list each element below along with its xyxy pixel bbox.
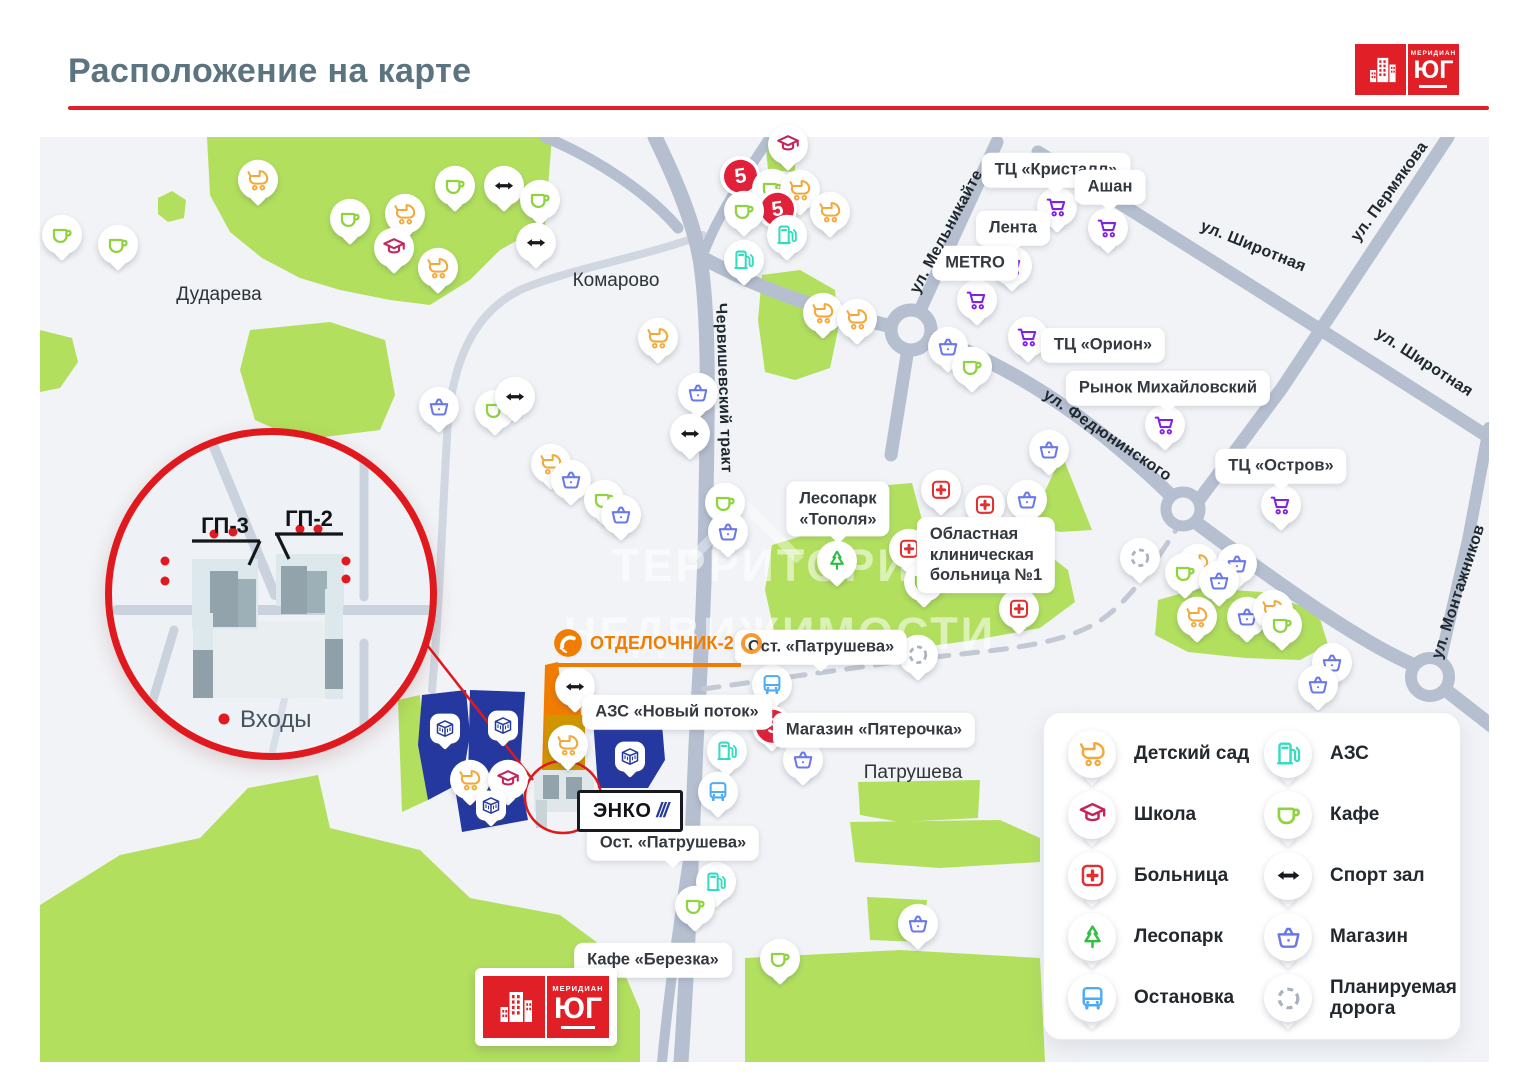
pin-basket-icon xyxy=(678,373,718,413)
pin-gas-icon xyxy=(707,731,747,771)
pin-school-icon xyxy=(374,228,414,268)
pin-basket-icon xyxy=(1298,665,1338,705)
pin-basket-icon xyxy=(1007,480,1047,520)
otdelochnik-icon xyxy=(553,628,583,658)
building-icon xyxy=(1364,54,1398,86)
map-legend: Детский садШколаБольницаЛесопаркОстановк… xyxy=(1043,712,1461,1040)
enko-slashes-icon: /// xyxy=(656,800,667,823)
page-title: Расположение на карте xyxy=(68,52,471,91)
gas-icon xyxy=(1264,730,1312,778)
pin-stroller-icon xyxy=(638,318,678,358)
legend-label: Школа xyxy=(1134,804,1196,826)
inset-scene: ГП-3 ГП-2 Входы xyxy=(112,435,430,753)
stroller-icon xyxy=(1068,730,1116,778)
place-label: Лента xyxy=(976,211,1050,246)
enko-text: ЭНКО xyxy=(593,800,651,823)
legend-label: Остановка xyxy=(1134,987,1234,1009)
bus-icon xyxy=(1068,974,1116,1022)
residential-building-icon xyxy=(430,714,460,744)
pin-school-icon xyxy=(768,125,808,165)
legend-label: Кафе xyxy=(1330,804,1379,826)
pin-hospital-icon xyxy=(999,589,1039,629)
district-label: Комарово xyxy=(573,270,660,292)
pin-cafe-icon xyxy=(1262,605,1302,645)
legend-label: АЗС xyxy=(1330,743,1369,765)
pin-sport-icon xyxy=(484,166,524,206)
title-underline xyxy=(68,106,1489,110)
legend-label: Планируемая дорога xyxy=(1330,977,1460,1021)
inset-gp3-label: ГП-3 xyxy=(201,513,249,538)
pin-cafe-icon xyxy=(42,215,82,255)
pin-stroller-icon xyxy=(810,192,850,232)
legend-item-school: Школа xyxy=(1068,791,1264,839)
pin-gas-icon xyxy=(724,240,764,280)
pin-sport-icon xyxy=(516,223,556,263)
otdelochnik-text: ОТДЕЛОЧНИК-2 xyxy=(590,633,734,654)
legend-label: Больница xyxy=(1134,865,1228,887)
enko-logo: ЭНКО /// xyxy=(577,790,683,832)
pin-cafe-icon xyxy=(952,347,992,387)
pin-basket-icon xyxy=(419,387,459,427)
pin-hospital-icon xyxy=(921,470,961,510)
yug-building-icon xyxy=(483,976,545,1038)
legend-item-planned: Планируемая дорога xyxy=(1264,974,1460,1022)
hospital-icon xyxy=(1068,852,1116,900)
legend-item-tree: Лесопарк xyxy=(1068,913,1264,961)
yug-site-logo: МЕРИДИАН ЮГ xyxy=(475,968,617,1046)
yug-underline xyxy=(561,1026,595,1029)
legend-item-basket: Магазин xyxy=(1264,913,1460,961)
brand-main-text: ЮГ xyxy=(1414,58,1454,83)
legend-item-stroller: Детский сад xyxy=(1068,730,1264,778)
residential-building-icon xyxy=(476,791,506,821)
yug-wordmark: МЕРИДИАН ЮГ xyxy=(547,976,609,1038)
pin-basket-icon xyxy=(1199,561,1239,601)
otdelochnik-ring-icon xyxy=(741,633,762,654)
pin-planned-icon xyxy=(1120,538,1160,578)
brand-underline xyxy=(1419,85,1447,88)
place-label: Ашан xyxy=(1075,170,1146,205)
cafe-icon xyxy=(1264,791,1312,839)
residential-building-icon xyxy=(488,711,518,741)
pin-basket-icon xyxy=(898,904,938,944)
pin-basket-icon xyxy=(1029,430,1069,470)
legend-item-sport: Спорт зал xyxy=(1264,852,1460,900)
place-label: Рынок Михайловский xyxy=(1066,371,1270,406)
company-building-icon xyxy=(1355,44,1406,95)
pin-sport-icon xyxy=(495,377,535,417)
school-icon xyxy=(1068,791,1116,839)
pin-gas-icon xyxy=(767,215,807,255)
pin-sport-icon xyxy=(670,414,710,454)
pin-cart-icon xyxy=(1088,208,1128,248)
site-inset-magnifier: ГП-3 ГП-2 Входы xyxy=(105,428,437,760)
pin-cafe-icon xyxy=(760,939,800,979)
yug-main-text: ЮГ xyxy=(554,994,602,1024)
legend-item-cafe: Кафе xyxy=(1264,791,1460,839)
pin-cafe-icon xyxy=(98,225,138,265)
place-label: Магазин «Пятерочка» xyxy=(773,713,975,748)
residential-building-icon xyxy=(615,742,645,772)
pin-cafe-icon xyxy=(724,191,764,231)
place-label: ТЦ «Орион» xyxy=(1041,328,1165,363)
legend-label: Магазин xyxy=(1330,926,1408,948)
pin-cafe-icon xyxy=(330,199,370,239)
place-label: Областнаяклиническаябольница №1 xyxy=(917,517,1055,593)
pin-bus-icon xyxy=(698,772,738,812)
pin-stroller-icon xyxy=(238,160,278,200)
otdelochnik-logo: ОТДЕЛОЧНИК-2 xyxy=(553,628,741,667)
planned-icon xyxy=(1264,974,1312,1022)
legend-item-bus: Остановка xyxy=(1068,974,1264,1022)
basket-icon xyxy=(1264,913,1312,961)
inset-entrance-dot-icon xyxy=(219,714,230,725)
pin-cafe-icon xyxy=(435,166,475,206)
place-label: ТЦ «Остров» xyxy=(1215,449,1346,484)
sport-icon xyxy=(1264,852,1312,900)
company-logo: МЕРИДИАН ЮГ xyxy=(1355,44,1459,95)
district-label: Дударева xyxy=(176,284,261,306)
place-label: Лесопарк«Тополя» xyxy=(786,481,889,536)
pin-stroller-icon xyxy=(837,299,877,339)
district-label: Патрушева xyxy=(864,762,963,784)
pin-cafe-icon xyxy=(520,180,560,220)
legend-item-hospital: Больница xyxy=(1068,852,1264,900)
inset-entrances-label: Входы xyxy=(240,706,312,733)
legend-label: Спорт зал xyxy=(1330,865,1425,887)
legend-item-gas: АЗС xyxy=(1264,730,1460,778)
pin-tree-icon xyxy=(817,541,857,581)
legend-label: Детский сад xyxy=(1134,743,1249,765)
pin-basket-icon xyxy=(708,512,748,552)
pin-cafe-icon xyxy=(675,886,715,926)
pin-cart-icon xyxy=(957,280,997,320)
company-wordmark: МЕРИДИАН ЮГ xyxy=(1408,44,1459,95)
inset-gp2-label: ГП-2 xyxy=(285,506,333,531)
pin-stroller-icon xyxy=(548,725,588,765)
tree-icon xyxy=(1068,913,1116,961)
legend-label: Лесопарк xyxy=(1134,926,1223,948)
pin-stroller-icon xyxy=(418,248,458,288)
place-label: АЗС «Новый поток» xyxy=(582,695,772,730)
pin-basket-icon xyxy=(601,495,641,535)
pin-stroller-icon xyxy=(1177,597,1217,637)
